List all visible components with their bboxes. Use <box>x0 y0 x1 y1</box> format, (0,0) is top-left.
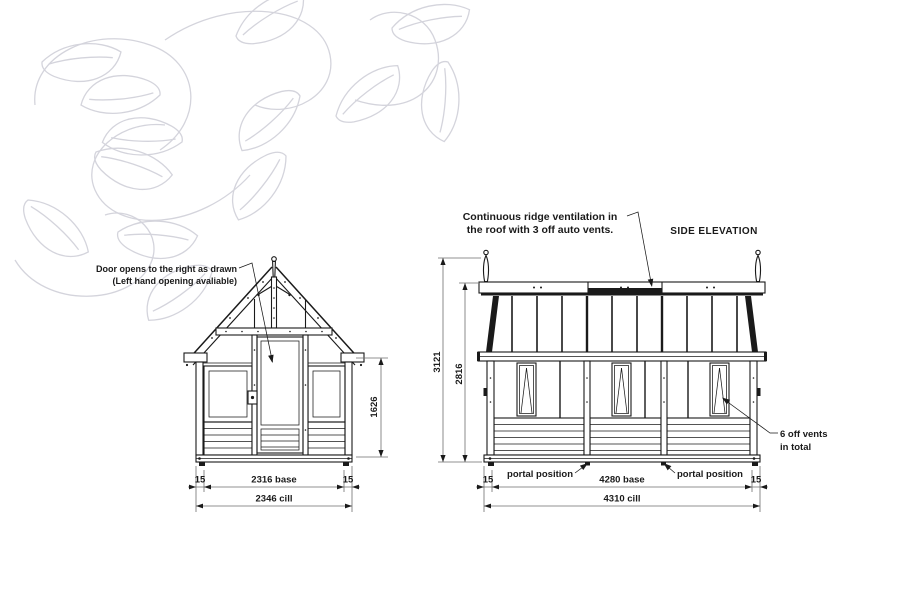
side-ridge-height-label: 2816 <box>454 363 465 384</box>
door-note-line1: Door opens to the right as drawn <box>96 264 237 274</box>
front-bottom-dimensions: 15 2316 base 15 2346 cill <box>188 466 360 512</box>
vents-note-line2: in total <box>780 442 811 453</box>
side-margin-right-label: 15 <box>751 475 762 486</box>
door-note-line2: (Left hand opening avaliable) <box>112 276 237 286</box>
leaf-vine-pattern <box>15 0 479 322</box>
front-height-dimension: 1626 <box>356 358 388 457</box>
side-eaves <box>477 352 767 361</box>
ridge-vent-note: Continuous ridge ventilation in the roof… <box>463 211 655 288</box>
side-margin-left-label: 15 <box>483 475 494 486</box>
side-vent-3 <box>710 363 729 416</box>
front-elevation <box>184 257 364 466</box>
front-cill-label: 2346 cill <box>256 494 293 505</box>
portal-right-label: portal position <box>677 469 743 480</box>
portal-left-label: portal position <box>507 469 573 480</box>
ridge-auto-vent <box>588 288 662 296</box>
side-height-dimensions: 3121 2816 <box>432 258 482 462</box>
side-roof-glazing-bars <box>486 296 758 352</box>
door-note: Door opens to the right as drawn (Left h… <box>96 263 275 364</box>
side-vent-1 <box>517 363 536 416</box>
side-elevation <box>477 250 767 466</box>
door-handle <box>248 391 257 404</box>
drawing-canvas: 1626 15 2316 base 15 2346 cill 3121 2816 <box>0 0 900 602</box>
front-eaves <box>184 353 364 366</box>
side-finial-left <box>482 250 488 286</box>
side-elevation-title: SIDE ELEVATION <box>670 226 757 237</box>
front-height-label: 1626 <box>369 396 380 417</box>
side-base-label: 4280 base <box>599 475 644 486</box>
side-vent-2 <box>612 363 631 416</box>
front-margin-left-label: 15 <box>195 475 206 486</box>
ridge-note-line2: the roof with 3 off auto vents. <box>467 224 613 236</box>
side-finial-right <box>755 250 761 286</box>
side-base-slats <box>494 418 750 455</box>
front-base <box>196 455 352 466</box>
ridge-note-line1: Continuous ridge ventilation in <box>463 211 618 223</box>
front-right-panel <box>308 366 345 455</box>
side-base <box>484 455 760 466</box>
front-margin-right-label: 15 <box>343 475 354 486</box>
side-cill-label: 4310 cill <box>604 494 641 505</box>
side-overall-height-label: 3121 <box>432 351 443 373</box>
front-base-label: 2316 base <box>251 475 296 486</box>
front-left-panel <box>204 366 252 455</box>
vents-note-line1: 6 off vents <box>780 429 828 440</box>
greenhouse-technical-drawing: 1626 15 2316 base 15 2346 cill 3121 2816 <box>0 0 900 602</box>
front-door <box>252 335 308 455</box>
